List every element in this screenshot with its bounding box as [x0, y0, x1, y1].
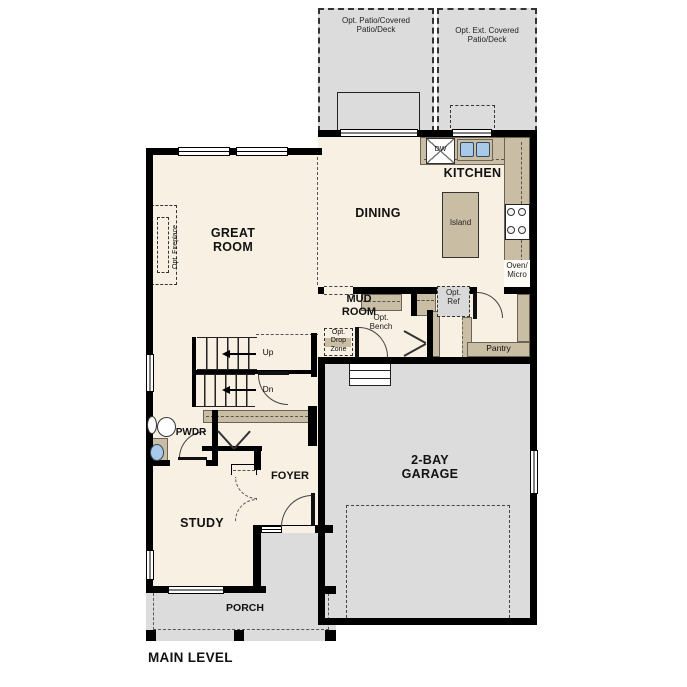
- opt-fireplace-label: Opt. Fireplace: [172, 212, 185, 282]
- closet-right-wall: [308, 406, 317, 446]
- mud-interior-wall: [411, 287, 417, 316]
- opt-patio-right-label: Opt. Ext. Covered Patio/Deck: [441, 26, 533, 44]
- dishwasher-label: DW: [426, 146, 455, 154]
- right-exterior-wall: [530, 130, 537, 625]
- mud-door-leaf: [355, 327, 359, 358]
- great-room-top-wall: [146, 148, 322, 155]
- up-arrow-line: [230, 353, 256, 355]
- sink-basin: [476, 142, 490, 157]
- study-left-window: [146, 550, 154, 580]
- upper-cabinet-dash: [521, 240, 522, 262]
- garage-bottom-wall: [318, 618, 537, 625]
- opt-ref-label: Opt. Ref: [437, 288, 470, 306]
- coat-shelf: [231, 464, 257, 475]
- oven-micro-label: Oven/ Micro: [501, 261, 533, 279]
- sliding-door-sill: [340, 129, 418, 137]
- dn-arrow-head: [222, 386, 230, 394]
- great-room-window: [236, 147, 288, 156]
- hall-door-leaf: [258, 371, 289, 375]
- foyer-sill-window: [261, 526, 282, 533]
- garage-right-window: [530, 450, 538, 494]
- burner: [518, 226, 526, 234]
- sink-basin: [460, 142, 474, 157]
- great-room-label: GREAT ROOM: [193, 226, 273, 255]
- plan-title: MAIN LEVEL: [148, 650, 308, 666]
- mud-counter-dash: [417, 300, 434, 301]
- porch-post: [234, 630, 244, 641]
- pantry-shelf-right: [517, 294, 530, 342]
- garage-door-dashed: [346, 505, 510, 618]
- pwdr-sink: [150, 444, 164, 461]
- toilet-tank: [147, 416, 157, 434]
- porch-notch: [261, 533, 318, 593]
- opt-door-sill: [452, 129, 492, 137]
- stairs-up-label: Up: [258, 348, 278, 358]
- hall-closet-wall: [427, 310, 433, 358]
- great-hall-divider: [256, 334, 318, 335]
- garage-label: 2-BAY GARAGE: [370, 453, 490, 482]
- pwdr-bottom-wall: [206, 460, 218, 466]
- left-wall-window: [146, 354, 154, 392]
- burner: [518, 208, 526, 216]
- garage-top-wall: [318, 357, 537, 364]
- opt-fireplace-inner: [157, 217, 169, 273]
- sliding-door-outline: [337, 92, 420, 131]
- garage-left-wall: [318, 357, 325, 625]
- burner: [507, 226, 515, 234]
- pwdr-door-leaf: [178, 457, 207, 460]
- foyer-label: FOYER: [265, 470, 315, 483]
- dining-label: DINING: [338, 206, 418, 220]
- stairs-dn-label: Dn: [258, 385, 278, 395]
- burner: [507, 208, 515, 216]
- mud-room-label: MUD ROOM: [323, 293, 395, 318]
- up-arrow-head: [222, 350, 230, 358]
- upper-cabinet-dash: [521, 142, 522, 204]
- stair-right-wall: [311, 333, 317, 377]
- dining-great-divider: [317, 152, 318, 285]
- porch-post: [146, 630, 156, 641]
- pantry-label: Pantry: [467, 344, 530, 354]
- study-label: STUDY: [167, 516, 237, 530]
- understair-shelf-dash: [206, 416, 308, 417]
- stair-stringer: [195, 370, 317, 374]
- opt-patio-left-label: Opt. Patio/Covered Patio/Deck: [322, 16, 430, 34]
- floor-plan: Opt. Patio/Covered Patio/Deck Opt. Ext. …: [0, 0, 687, 687]
- kitchen-label: KITCHEN: [430, 166, 515, 180]
- study-step-wall: [253, 525, 261, 593]
- closet-shelf: [432, 311, 440, 357]
- pantry-door-leaf: [473, 292, 477, 319]
- front-door-leaf: [311, 493, 315, 526]
- pwdr-label: PWDR: [168, 427, 214, 439]
- great-room-window: [178, 147, 230, 156]
- island-label: Island: [442, 218, 479, 227]
- dn-arrow-line: [230, 389, 256, 391]
- garage-steps: [349, 362, 391, 386]
- opt-drop-zone-label: Opt. Drop Zone: [324, 329, 353, 354]
- porch-corner-post: [325, 586, 336, 594]
- porch-post: [325, 630, 336, 641]
- porch-label: PORCH: [200, 602, 290, 614]
- study-bottom-window: [168, 586, 224, 594]
- stair-left-cap: [192, 337, 196, 407]
- front-door-opening: [282, 526, 315, 533]
